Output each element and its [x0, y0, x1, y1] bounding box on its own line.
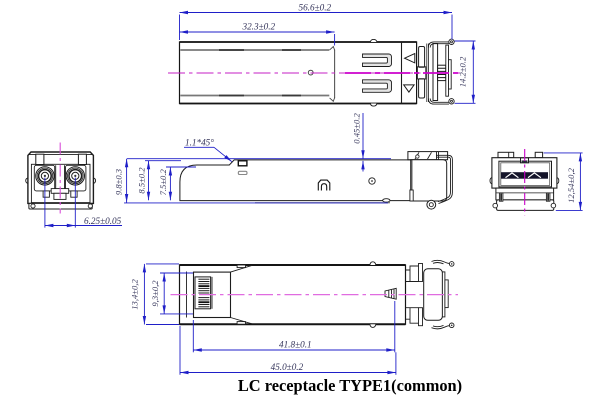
svg-text:45.0±0.2: 45.0±0.2 [271, 362, 304, 372]
svg-text:1.1*45°: 1.1*45° [185, 138, 214, 148]
svg-text:0.45±0.2: 0.45±0.2 [352, 113, 362, 144]
svg-text:12,54±0,2: 12,54±0,2 [566, 167, 576, 202]
svg-text:32.3±0.2: 32.3±0.2 [241, 21, 275, 31]
svg-text:7.5±0.2: 7.5±0.2 [158, 168, 168, 195]
svg-text:9.8±0.3: 9.8±0.3 [114, 169, 124, 195]
svg-text:13,4±0,2: 13,4±0,2 [130, 279, 140, 310]
svg-text:6.25±0.05: 6.25±0.05 [84, 216, 122, 226]
svg-text:LC receptacle TYPE1(common): LC receptacle TYPE1(common) [238, 376, 462, 395]
svg-text:41.8±0.1: 41.8±0.1 [279, 340, 312, 350]
svg-text:14.2±0.2: 14.2±0.2 [457, 56, 467, 87]
svg-text:56.6±0.2: 56.6±0.2 [298, 3, 331, 13]
svg-text:8.5±0.2: 8.5±0.2 [136, 167, 146, 194]
svg-text:9,3±0,2: 9,3±0,2 [150, 280, 160, 307]
